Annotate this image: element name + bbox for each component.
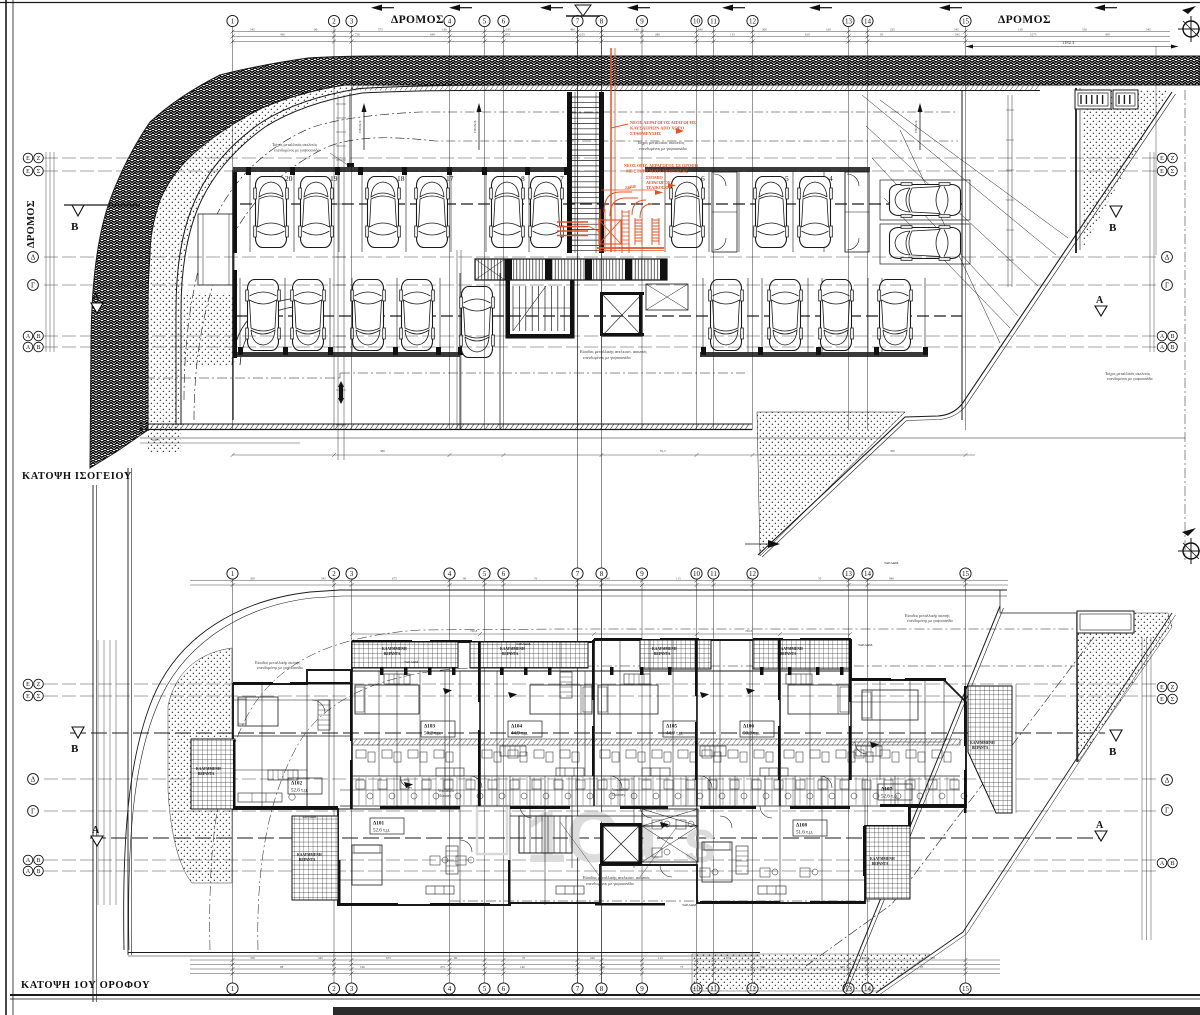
svg-text:430: 430 [1105, 33, 1110, 37]
svg-text:ΔΡΟΜΟΣ: ΔΡΟΜΟΣ [998, 14, 1051, 26]
svg-text:7: 7 [576, 570, 580, 578]
svg-text:ΒΕΡΑΝΤΑ: ΒΕΡΑΝΤΑ [502, 652, 519, 656]
svg-text:6: 6 [502, 18, 506, 26]
svg-text:135: 135 [730, 33, 735, 37]
svg-text:760.8: 760.8 [745, 629, 753, 633]
svg-text:Α: Α [26, 858, 31, 864]
svg-text:44.9 τ.μ.: 44.9 τ.μ. [666, 732, 683, 737]
svg-text:50.2 τ.μ.: 50.2 τ.μ. [743, 732, 760, 737]
svg-text:ΜΕ ΣΤΗΡΙΓΜΑΤΑ ΑΝΑΡΤΗΣΗΣ: ΜΕ ΣΤΗΡΙΓΜΑΤΑ ΑΝΑΡΤΗΣΗΣ [626, 169, 689, 174]
svg-text:20: 20 [285, 174, 293, 183]
svg-text:1: 1 [231, 570, 235, 578]
svg-text:Β: Β [71, 743, 79, 755]
svg-text:545: 545 [954, 28, 959, 32]
svg-text:8: 8 [600, 570, 604, 578]
svg-text:51.6 τ.μ.: 51.6 τ.μ. [796, 831, 813, 836]
svg-text:ΒΕΡΑΝΤΑ: ΒΕΡΑΝΤΑ [384, 652, 401, 656]
svg-text:ΝΕΟΣ ΑΕΡΑΓΩΓΟΣ ΑΠΑΓΩΓΗΣ: ΝΕΟΣ ΑΕΡΑΓΩΓΟΣ ΑΠΑΓΩΓΗΣ [630, 120, 696, 125]
svg-text:ΔΡΟΜΟΣ: ΔΡΟΜΟΣ [391, 14, 444, 26]
svg-text:11: 11 [710, 570, 717, 578]
svg-text:280: 280 [655, 33, 660, 37]
svg-text:90: 90 [463, 577, 467, 581]
svg-text:15: 15 [962, 985, 970, 993]
svg-text:7: 7 [576, 985, 580, 993]
svg-text:380: 380 [380, 449, 385, 453]
svg-text:Α: Α [26, 869, 31, 875]
svg-text:14: 14 [864, 18, 872, 26]
svg-text:Β: Β [71, 221, 79, 233]
svg-text:Σ: Σ [1171, 169, 1175, 175]
svg-text:9: 9 [640, 18, 644, 26]
svg-text:Ε: Ε [26, 156, 30, 162]
svg-text:Β: Β [1170, 345, 1174, 351]
svg-text:Α: Α [92, 292, 100, 303]
svg-text:Δ: Δ [1165, 777, 1170, 785]
svg-text:12: 12 [749, 18, 757, 26]
svg-text:ΒΕΡΑΝΤΑ: ΒΕΡΑΝΤΑ [299, 858, 316, 862]
svg-text:Δ104: Δ104 [511, 724, 522, 730]
svg-text:Chimney: Chimney [438, 794, 451, 798]
svg-text:ΤΑΡ.ΔΩΜ.: ΤΑΡ.ΔΩΜ. [302, 815, 317, 819]
svg-text:Ε: Ε [1160, 685, 1164, 691]
svg-text:ΤΑΡ.ΔΩΜ.: ΤΑΡ.ΔΩΜ. [884, 561, 899, 565]
svg-text:Δ: Δ [1165, 254, 1170, 262]
svg-text:ΚΑΛΥΜΜΕΝΗ: ΚΑΛΥΜΜΕΝΗ [652, 647, 677, 651]
svg-text:Ventilation: Ventilation [438, 789, 454, 793]
svg-text:240: 240 [625, 186, 631, 190]
svg-text:195: 195 [506, 28, 511, 32]
svg-text:ΕΙΣΟΔΟΣ: ΕΙΣΟΔΟΣ [358, 120, 362, 133]
svg-text:Chimney: Chimney [612, 793, 625, 797]
svg-text:Ε: Ε [26, 169, 30, 175]
svg-text:Β: Β [1109, 746, 1117, 758]
svg-text:430: 430 [280, 33, 285, 37]
svg-text:3: 3 [350, 18, 354, 26]
svg-text:9: 9 [640, 570, 644, 578]
svg-text:Ζ: Ζ [37, 682, 41, 688]
svg-text:50.2 τ.μ.: 50.2 τ.μ. [424, 732, 441, 737]
svg-text:6: 6 [502, 985, 506, 993]
svg-text:Γ: Γ [31, 808, 35, 816]
svg-text:Β: Β [1170, 861, 1174, 867]
svg-text:Δ103: Δ103 [424, 724, 435, 730]
svg-text:Α: Α [1160, 861, 1165, 867]
svg-text:Ζ: Ζ [1171, 685, 1175, 691]
svg-text:5: 5 [785, 174, 789, 183]
svg-text:235: 235 [890, 28, 895, 32]
svg-text:545: 545 [955, 33, 960, 37]
svg-text:Ε: Ε [1160, 169, 1164, 175]
svg-text:52.6 τ.μ.: 52.6 τ.μ. [881, 795, 898, 800]
svg-text:Β: Β [1109, 222, 1117, 234]
svg-text:240: 240 [590, 956, 595, 960]
svg-text:130: 130 [1018, 28, 1023, 32]
svg-text:14: 14 [864, 570, 872, 578]
svg-text:100: 100 [826, 28, 831, 32]
svg-text:ΒΕΡΑΝΤΑ: ΒΕΡΑΝΤΑ [972, 746, 989, 750]
svg-text:3: 3 [350, 570, 354, 578]
svg-text:Α: Α [26, 334, 31, 340]
svg-text:5: 5 [483, 570, 487, 578]
svg-text:575: 575 [378, 28, 383, 32]
svg-text:545: 545 [321, 577, 326, 581]
svg-text:13: 13 [845, 570, 853, 578]
svg-text:ΒΕΡΑΝΤΑ: ΒΕΡΑΝΤΑ [780, 652, 797, 656]
svg-text:6: 6 [502, 570, 506, 578]
svg-text:75: 75 [680, 965, 684, 969]
svg-text:επενδυμένος με γυψοσανίδα: επενδυμένος με γυψοσανίδα [583, 355, 631, 360]
svg-text:επενδυμένος με γυψοσανίδα: επενδυμένος με γυψοσανίδα [586, 881, 634, 886]
svg-text:52.6 τ.μ.: 52.6 τ.μ. [291, 789, 308, 794]
svg-text:Δ108: Δ108 [796, 823, 807, 829]
svg-text:8: 8 [521, 174, 525, 183]
svg-text:Ε: Ε [1160, 156, 1164, 162]
svg-text:ΔΡΟΜΟΣ: ΔΡΟΜΟΣ [26, 200, 37, 248]
svg-text:1: 1 [231, 18, 235, 26]
svg-text:545: 545 [318, 956, 323, 960]
svg-text:610: 610 [805, 33, 810, 37]
svg-text:Α: Α [1160, 345, 1165, 351]
svg-text:ΒΕΡΑΝΤΑ: ΒΕΡΑΝΤΑ [654, 652, 671, 656]
svg-text:Δ107: Δ107 [881, 787, 892, 793]
svg-text:ΚΑΛΥΜΜΕΝΗ: ΚΑΛΥΜΜΕΝΗ [778, 647, 803, 651]
svg-text:Ζ: Ζ [1171, 156, 1175, 162]
svg-text:Β: Β [1170, 334, 1174, 340]
svg-text:1: 1 [231, 985, 235, 993]
svg-text:Ventilation: Ventilation [612, 788, 628, 792]
svg-text:81.5: 81.5 [660, 449, 666, 453]
svg-text:Β: Β [36, 858, 40, 864]
svg-text:Γ: Γ [31, 282, 35, 290]
svg-text:760.8: 760.8 [470, 629, 478, 633]
svg-text:4: 4 [829, 174, 833, 183]
svg-text:Β: Β [36, 334, 40, 340]
svg-text:15: 15 [962, 18, 970, 26]
svg-text:Α: Α [26, 345, 31, 351]
svg-text:11: 11 [710, 18, 717, 26]
svg-text:Ε: Ε [26, 694, 30, 700]
svg-text:ΤΑΡ.ΔΩΜ.: ΤΑΡ.ΔΩΜ. [682, 903, 697, 907]
svg-text:13: 13 [845, 18, 853, 26]
svg-text:9: 9 [640, 985, 644, 993]
svg-text:ΕΙΣΟΔΟΣ: ΕΙΣΟΔΟΣ [473, 120, 477, 133]
svg-text:επενδυμένος με γυψοσανίδα: επενδυμένος με γυψοσανίδα [1107, 376, 1152, 381]
svg-text:640: 640 [430, 33, 435, 37]
svg-text:140: 140 [634, 28, 639, 32]
svg-text:ΚΑΛΥΜΜΕΝΗ: ΚΑΛΥΜΜΕΝΗ [382, 647, 407, 651]
svg-text:675: 675 [386, 956, 391, 960]
svg-text:550: 550 [1082, 28, 1087, 32]
svg-text:ΚΑΛΥΜΜΕΝΗ: ΚΑΛΥΜΜΕΝΗ [297, 853, 322, 857]
svg-text:475: 475 [440, 965, 445, 969]
svg-text:ΤΕΛΙΚΟΣ Φ: ΤΕΛΙΚΟΣ Φ [646, 185, 669, 190]
svg-text:ΣΤΑΘΜΕΥΣΗΣ: ΣΤΑΘΜΕΥΣΗΣ [630, 131, 661, 136]
svg-text:Α: Α [1160, 334, 1165, 340]
svg-text:Γ: Γ [1165, 807, 1169, 815]
svg-text:730: 730 [355, 33, 360, 37]
svg-text:ΤΑΡ.ΔΩΜ.: ΤΑΡ.ΔΩΜ. [516, 642, 531, 646]
svg-text:Β: Β [36, 869, 40, 875]
svg-text:140: 140 [520, 965, 525, 969]
svg-text:10: 10 [693, 18, 701, 26]
svg-text:ΚΑΤΟΨΗ 1ΟΥ ΟΡΟΦΟΥ: ΚΑΤΟΨΗ 1ΟΥ ΟΡΟΦΟΥ [21, 980, 150, 991]
svg-text:Α: Α [1096, 820, 1104, 831]
svg-text:8: 8 [600, 18, 604, 26]
svg-text:115: 115 [676, 577, 681, 581]
svg-text:Δ: Δ [31, 254, 36, 262]
svg-text:επενδυμένος με γυψοσανίδα: επενδυμένος με γυψοσανίδα [639, 146, 687, 151]
svg-text:400: 400 [600, 965, 605, 969]
svg-text:επενδυμένης με γυψοσανίδα: επενδυμένης με γυψοσανίδα [907, 618, 953, 623]
svg-text:επενδυμένος με γυψοσανίδα: επενδυμένος με γυψοσανίδα [274, 148, 319, 153]
svg-text:90: 90 [314, 28, 318, 32]
svg-text:ΒΕΡΑΝΤΑ: ΒΕΡΑΝΤΑ [198, 772, 215, 776]
svg-text:5: 5 [483, 18, 487, 26]
svg-text:Δ: Δ [31, 776, 36, 784]
svg-text:2: 2 [332, 570, 336, 578]
svg-text:675: 675 [392, 577, 397, 581]
svg-text:608.3: 608.3 [152, 438, 160, 442]
svg-text:115: 115 [658, 956, 663, 960]
svg-text:Σ: Σ [1171, 697, 1175, 703]
svg-text:7: 7 [560, 174, 564, 183]
svg-text:ΒΕΡΑΝΤΑ: ΒΕΡΑΝΤΑ [872, 862, 889, 866]
svg-text:Β: Β [36, 345, 40, 351]
svg-text:940: 940 [889, 577, 894, 581]
svg-text:8: 8 [600, 985, 604, 993]
svg-text:10: 10 [693, 570, 701, 578]
svg-text:490: 490 [570, 28, 575, 32]
svg-text:340: 340 [698, 28, 703, 32]
svg-text:Δ106: Δ106 [743, 724, 754, 730]
svg-text:190: 190 [360, 965, 365, 969]
svg-text:Δ101: Δ101 [373, 821, 384, 827]
svg-text:ΚΑΛΥΜΜΕΝΗ: ΚΑΛΥΜΜΕΝΗ [970, 741, 995, 745]
svg-text:93: 93 [920, 965, 924, 969]
svg-text:240: 240 [630, 185, 636, 189]
svg-text:190: 190 [442, 28, 447, 32]
svg-text:70: 70 [818, 577, 822, 581]
svg-text:95: 95 [880, 33, 884, 37]
svg-text:ΝΕΟΣ ΟΡΙΖ. ΑΕΡΑΓΩΓΟΣ ΣΕ ΟΡΟΦΗ: ΝΕΟΣ ΟΡΙΖ. ΑΕΡΑΓΩΓΟΣ ΣΕ ΟΡΟΦΗ [624, 163, 699, 168]
svg-text:1075: 1075 [1030, 33, 1037, 37]
svg-text:Σ: Σ [37, 694, 41, 700]
svg-text:ΚΑΛΥΜΜΕΝΗ: ΚΑΛΥΜΜΕΝΗ [500, 647, 525, 651]
svg-text:1182.3: 1182.3 [1062, 40, 1075, 45]
svg-text:ΚΑΛΥΜΜΕΝΗ: ΚΑΛΥΜΜΕΝΗ [870, 857, 895, 861]
svg-text:Ε: Ε [1160, 697, 1164, 703]
svg-text:52.6 τ.μ.: 52.6 τ.μ. [373, 829, 390, 834]
svg-text:Είσοδος μεταλλικής ανελκυστ. α: Είσοδος μεταλλικής ανελκυστ. ασκεπές [583, 875, 650, 880]
svg-text:ΤΑΡ.ΔΩΜ.: ΤΑΡ.ΔΩΜ. [404, 660, 419, 664]
svg-text:350: 350 [250, 956, 255, 960]
svg-text:Σ: Σ [37, 169, 41, 175]
svg-text:545: 545 [250, 28, 255, 32]
svg-text:4: 4 [448, 570, 452, 578]
svg-text:Ζ: Ζ [37, 156, 41, 162]
svg-text:ΚΑΛΥΜΜΕΝΗ: ΚΑΛΥΜΜΕΝΗ [196, 767, 221, 771]
svg-text:98: 98 [280, 965, 284, 969]
svg-text:70: 70 [534, 577, 538, 581]
svg-text:4: 4 [448, 18, 452, 26]
svg-text:ΤΑΡ.ΔΩΜ.: ΤΑΡ.ΔΩΜ. [858, 643, 873, 647]
svg-text:44.9 τ.μ.: 44.9 τ.μ. [511, 732, 528, 737]
svg-text:105: 105 [580, 33, 585, 37]
svg-text:5: 5 [483, 985, 487, 993]
svg-text:4: 4 [448, 985, 452, 993]
svg-text:6: 6 [701, 174, 705, 183]
svg-text:350: 350 [250, 577, 255, 581]
svg-text:870: 870 [505, 33, 510, 37]
svg-text:300: 300 [762, 28, 767, 32]
svg-text:18: 18 [397, 174, 405, 183]
svg-text:873: 873 [747, 577, 752, 581]
svg-text:350: 350 [960, 577, 965, 581]
svg-text:επενδυμένης με γυψοσανίδα: επενδυμένης με γυψοσανίδα [257, 665, 303, 670]
svg-text:Δ105: Δ105 [666, 724, 677, 730]
svg-text:7: 7 [576, 18, 580, 26]
svg-text:70: 70 [522, 956, 526, 960]
svg-text:Δ102: Δ102 [291, 781, 302, 787]
svg-text:545: 545 [1146, 28, 1151, 32]
svg-text:2: 2 [332, 18, 336, 26]
svg-text:Γ: Γ [1165, 282, 1169, 290]
svg-text:Τοίχος μεταλλικός σκελετός: Τοίχος μεταλλικός σκελετός [637, 140, 685, 145]
svg-text:Α: Α [92, 825, 100, 836]
svg-text:90: 90 [454, 956, 458, 960]
svg-text:3: 3 [350, 985, 354, 993]
svg-text:Είσοδος μεταλλικής ανελκυστ. α: Είσοδος μεταλλικής ανελκυστ. ασκεπές [580, 349, 647, 354]
svg-text:Ε: Ε [26, 682, 30, 688]
svg-text:300: 300 [890, 449, 895, 453]
svg-text:Α: Α [1096, 295, 1104, 306]
svg-text:2: 2 [332, 985, 336, 993]
svg-text:240: 240 [605, 577, 610, 581]
svg-text:Τοίχος μεταλλικός σκελετός: Τοίχος μεταλλικός σκελετός [272, 142, 318, 147]
svg-text:17: 17 [446, 174, 454, 183]
svg-text:ΚΑΤΟΨΗ ΙΣΟΓΕΙΟΥ: ΚΑΤΟΨΗ ΙΣΟΓΕΙΟΥ [22, 471, 132, 482]
